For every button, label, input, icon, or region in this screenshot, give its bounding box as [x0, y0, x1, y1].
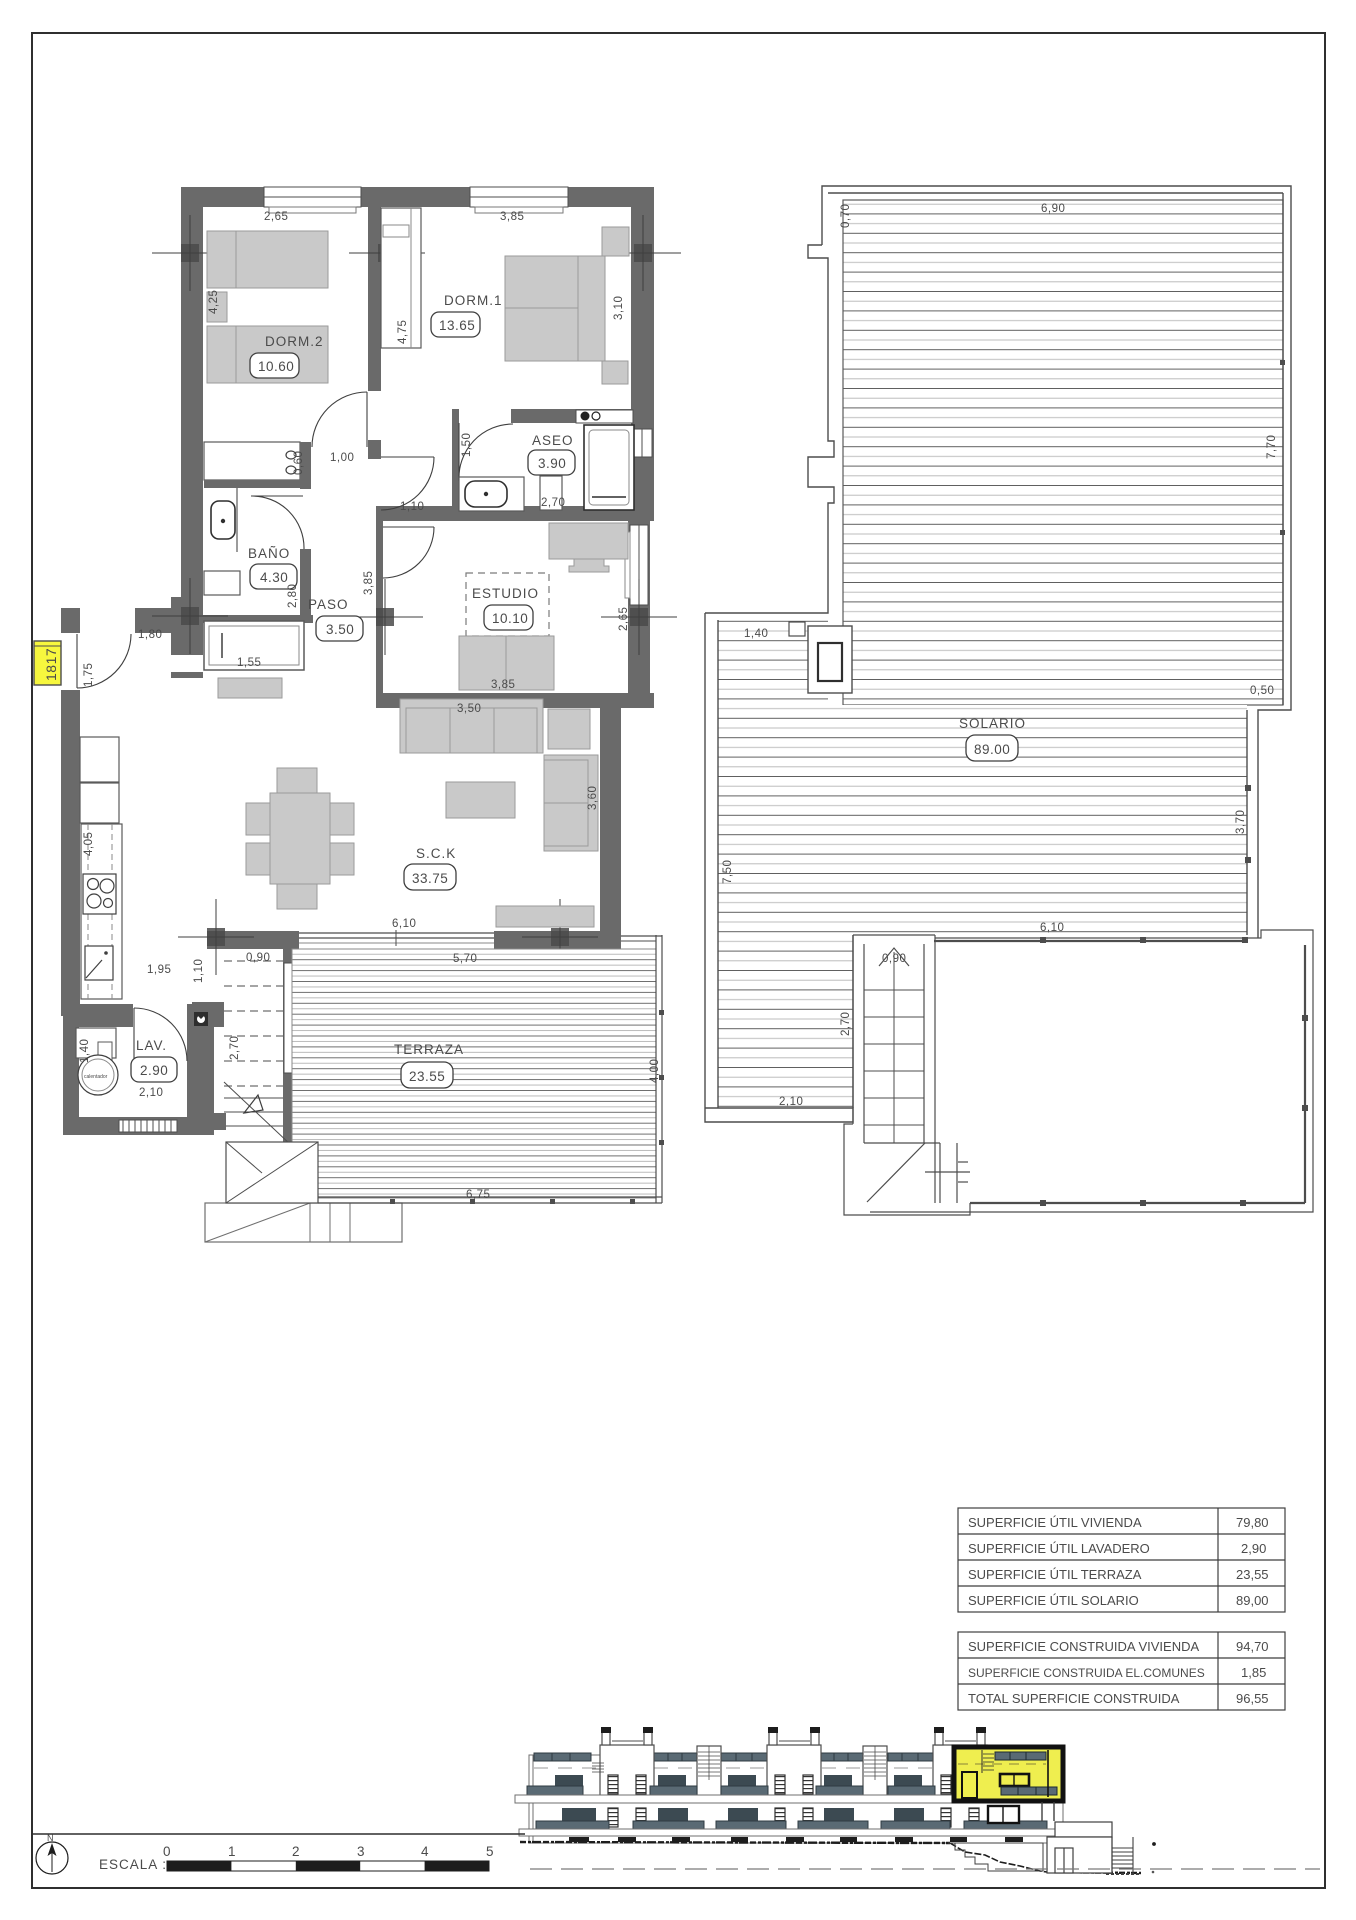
- svg-text:2,10: 2,10: [139, 1087, 163, 1099]
- svg-text:SUPERFICIE ÚTIL SOLARIO: SUPERFICIE ÚTIL SOLARIO: [968, 1593, 1139, 1608]
- svg-text:1,10: 1,10: [400, 501, 424, 513]
- svg-text:SUPERFICIE ÚTIL TERRAZA: SUPERFICIE ÚTIL TERRAZA: [968, 1567, 1142, 1582]
- svg-text:79,80: 79,80: [1236, 1515, 1269, 1530]
- svg-text:2,10: 2,10: [779, 1096, 803, 1108]
- svg-text:1: 1: [228, 1844, 236, 1859]
- svg-text:33.75: 33.75: [412, 871, 448, 886]
- svg-text:2,65: 2,65: [264, 211, 288, 223]
- svg-text:96,55: 96,55: [1236, 1691, 1269, 1706]
- svg-text:1,55: 1,55: [237, 657, 261, 669]
- svg-text:TERRAZA: TERRAZA: [394, 1042, 464, 1057]
- svg-text:23,55: 23,55: [1236, 1567, 1269, 1582]
- svg-text:PASO: PASO: [308, 597, 349, 612]
- svg-text:TOTAL SUPERFICIE CONSTRUIDA: TOTAL SUPERFICIE CONSTRUIDA: [968, 1691, 1180, 1706]
- svg-text:SOLARIO: SOLARIO: [959, 716, 1026, 731]
- svg-text:1,75: 1,75: [83, 663, 95, 687]
- svg-text:4.30: 4.30: [260, 570, 288, 585]
- svg-text:1817: 1817: [43, 648, 59, 681]
- svg-text:1,85: 1,85: [1241, 1665, 1266, 1680]
- svg-text:2,70: 2,70: [229, 1036, 241, 1060]
- svg-text:SUPERFICIE CONSTRUIDA VIVIENDA: SUPERFICIE CONSTRUIDA VIVIENDA: [968, 1639, 1199, 1654]
- svg-text:3,50: 3,50: [457, 703, 481, 715]
- svg-text:2,90: 2,90: [1241, 1541, 1266, 1556]
- svg-text:1,10: 1,10: [193, 959, 205, 983]
- svg-text:5: 5: [486, 1844, 494, 1859]
- svg-text:5,70: 5,70: [453, 953, 477, 965]
- svg-text:10.10: 10.10: [492, 611, 528, 626]
- svg-text:0,50: 0,50: [1250, 685, 1274, 697]
- svg-text:SUPERFICIE ÚTIL LAVADERO: SUPERFICIE ÚTIL LAVADERO: [968, 1541, 1150, 1556]
- svg-text:ESTUDIO: ESTUDIO: [472, 586, 539, 601]
- svg-text:ESCALA :: ESCALA :: [99, 1857, 167, 1872]
- svg-text:SUPERFICIE CONSTRUIDA EL.COMUN: SUPERFICIE CONSTRUIDA EL.COMUNES: [968, 1666, 1205, 1680]
- svg-text:DORM.1: DORM.1: [444, 293, 503, 308]
- svg-text:3,10: 3,10: [613, 296, 625, 320]
- svg-text:6,10: 6,10: [1040, 922, 1064, 934]
- svg-text:2.90: 2.90: [140, 1063, 168, 1078]
- svg-text:2,65: 2,65: [618, 607, 630, 631]
- svg-text:N: N: [47, 1833, 54, 1843]
- svg-text:SUPERFICIE ÚTIL VIVIENDA: SUPERFICIE ÚTIL VIVIENDA: [968, 1515, 1142, 1530]
- svg-text:2,80: 2,80: [287, 584, 299, 608]
- svg-text:13.65: 13.65: [439, 318, 475, 333]
- svg-text:6,10: 6,10: [392, 918, 416, 930]
- svg-text:0,60: 0,60: [293, 451, 305, 475]
- svg-text:0,90: 0,90: [246, 952, 270, 964]
- svg-text:89,00: 89,00: [1236, 1593, 1269, 1608]
- svg-text:3,85: 3,85: [363, 571, 375, 595]
- svg-text:4,05: 4,05: [83, 832, 95, 856]
- svg-text:1,80: 1,80: [138, 629, 162, 641]
- svg-text:LAV.: LAV.: [136, 1038, 167, 1053]
- svg-text:3.90: 3.90: [538, 456, 566, 471]
- svg-text:7,70: 7,70: [1266, 435, 1278, 459]
- svg-text:DORM.2: DORM.2: [265, 334, 324, 349]
- svg-text:94,70: 94,70: [1236, 1639, 1269, 1654]
- svg-text:4,00: 4,00: [649, 1059, 661, 1083]
- svg-text:4,25: 4,25: [208, 290, 220, 314]
- svg-text:4,75: 4,75: [397, 320, 409, 344]
- svg-text:3,60: 3,60: [587, 786, 599, 810]
- svg-text:2,70: 2,70: [840, 1012, 852, 1036]
- svg-text:3,85: 3,85: [491, 679, 515, 691]
- svg-text:6,90: 6,90: [1041, 203, 1065, 215]
- svg-text:4: 4: [421, 1844, 429, 1859]
- svg-text:3,70: 3,70: [1235, 810, 1247, 834]
- svg-text:calentador: calentador: [84, 1074, 108, 1080]
- svg-text:S.C.K: S.C.K: [416, 846, 456, 861]
- svg-text:3.50: 3.50: [326, 622, 354, 637]
- svg-text:1,40: 1,40: [79, 1039, 91, 1063]
- svg-text:3,85: 3,85: [500, 211, 524, 223]
- svg-text:7,50: 7,50: [722, 860, 734, 884]
- svg-text:2: 2: [292, 1844, 300, 1859]
- svg-text:ASEO: ASEO: [532, 433, 574, 448]
- svg-text:0: 0: [163, 1844, 171, 1859]
- svg-text:89.00: 89.00: [974, 742, 1010, 757]
- svg-text:1,40: 1,40: [744, 628, 768, 640]
- svg-text:BAÑO: BAÑO: [248, 546, 290, 561]
- svg-text:1,95: 1,95: [147, 964, 171, 976]
- svg-text:23.55: 23.55: [409, 1069, 445, 1084]
- svg-text:10.60: 10.60: [258, 359, 294, 374]
- svg-text:0,90: 0,90: [882, 953, 906, 965]
- svg-text:1,00: 1,00: [330, 452, 354, 464]
- svg-text:0,70: 0,70: [840, 204, 852, 228]
- svg-text:2,70: 2,70: [541, 497, 565, 509]
- svg-text:6,75: 6,75: [466, 1189, 490, 1201]
- svg-text:3: 3: [357, 1844, 365, 1859]
- svg-text:1,50: 1,50: [461, 433, 473, 457]
